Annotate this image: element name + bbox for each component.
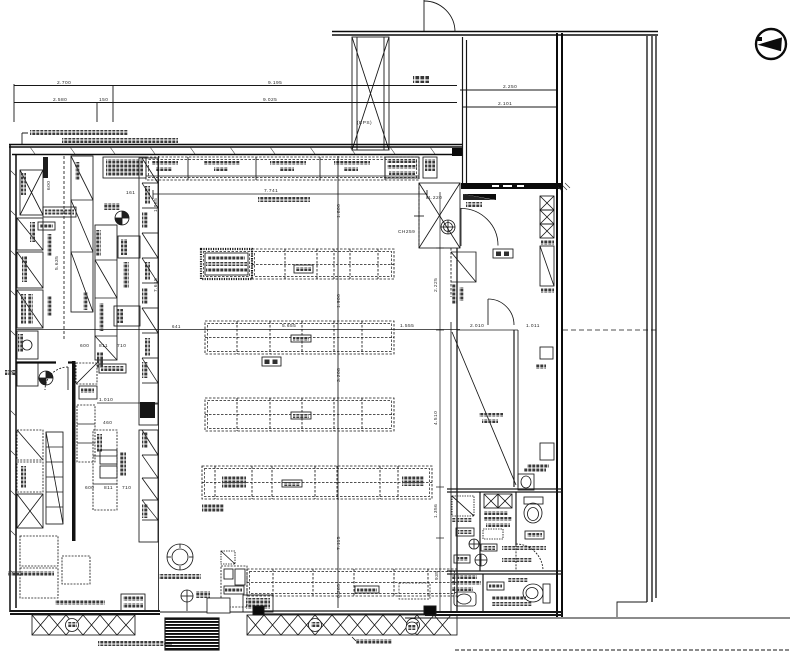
- svg-text:3.208: 3.208: [336, 368, 342, 382]
- svg-text:2.700: 2.700: [57, 80, 71, 86]
- svg-text:460: 460: [103, 420, 112, 426]
- svg-text:CH259: CH259: [398, 229, 415, 235]
- svg-text:1.010: 1.010: [99, 397, 113, 403]
- svg-text:1.800: 1.800: [336, 204, 342, 218]
- svg-text:1.011: 1.011: [526, 323, 540, 329]
- svg-text:710: 710: [117, 343, 126, 349]
- svg-text:5.635: 5.635: [54, 256, 60, 270]
- svg-text:2.010: 2.010: [470, 323, 484, 329]
- svg-text:9.195: 9.195: [268, 80, 282, 86]
- svg-text:710: 710: [122, 485, 131, 491]
- svg-text:935: 935: [434, 571, 440, 580]
- svg-text:811: 811: [99, 343, 108, 349]
- svg-text:4.510: 4.510: [433, 411, 439, 425]
- svg-text:2.250: 2.250: [503, 84, 517, 90]
- svg-text:811: 811: [104, 485, 113, 491]
- svg-text:9.025: 9.025: [263, 97, 277, 103]
- svg-text:5.655: 5.655: [282, 323, 296, 329]
- svg-text:7.115: 7.115: [336, 536, 342, 550]
- svg-text:2.580: 2.580: [53, 97, 67, 103]
- svg-text:1.555: 1.555: [400, 323, 414, 329]
- svg-text:1.356: 1.356: [433, 504, 439, 518]
- svg-text:7.741: 7.741: [264, 188, 278, 194]
- svg-text:2.101: 2.101: [498, 101, 512, 107]
- svg-text:1.900: 1.900: [336, 294, 342, 308]
- svg-text:2.225: 2.225: [433, 278, 439, 292]
- svg-text:600: 600: [46, 181, 52, 190]
- svg-text:161: 161: [126, 190, 135, 196]
- svg-text:(EPS): (EPS): [357, 120, 372, 126]
- svg-text:600: 600: [80, 343, 89, 349]
- svg-text:641: 641: [172, 324, 181, 329]
- svg-text:150: 150: [99, 97, 108, 103]
